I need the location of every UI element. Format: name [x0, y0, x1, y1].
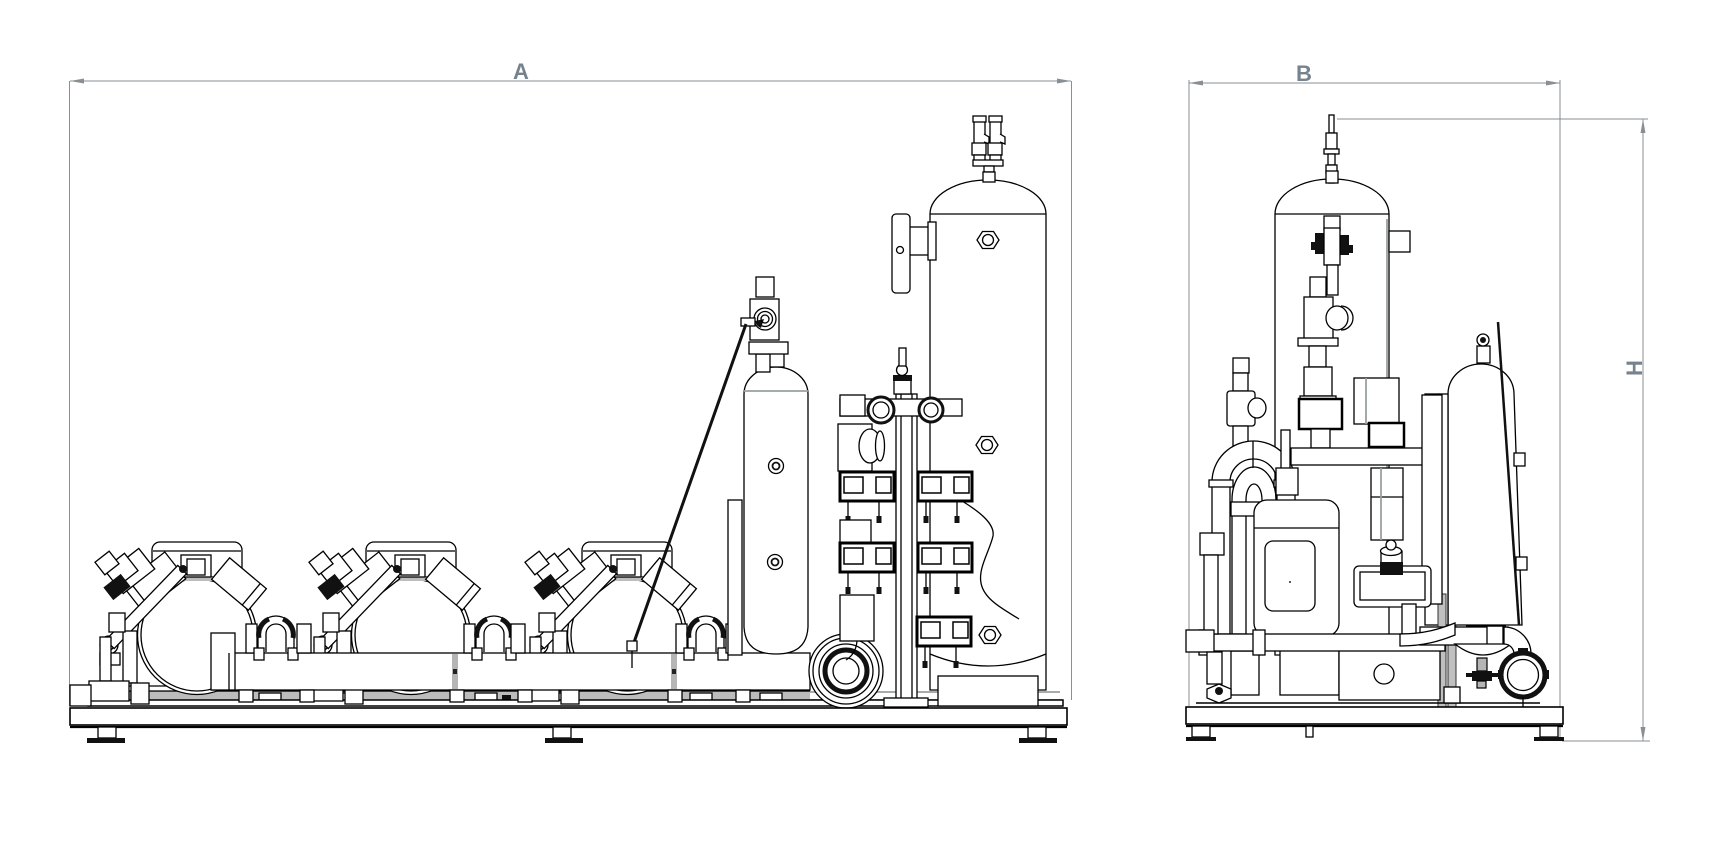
svg-text:H: H [1622, 360, 1647, 376]
svg-text:A: A [513, 59, 529, 84]
svg-text:B: B [1296, 61, 1312, 86]
